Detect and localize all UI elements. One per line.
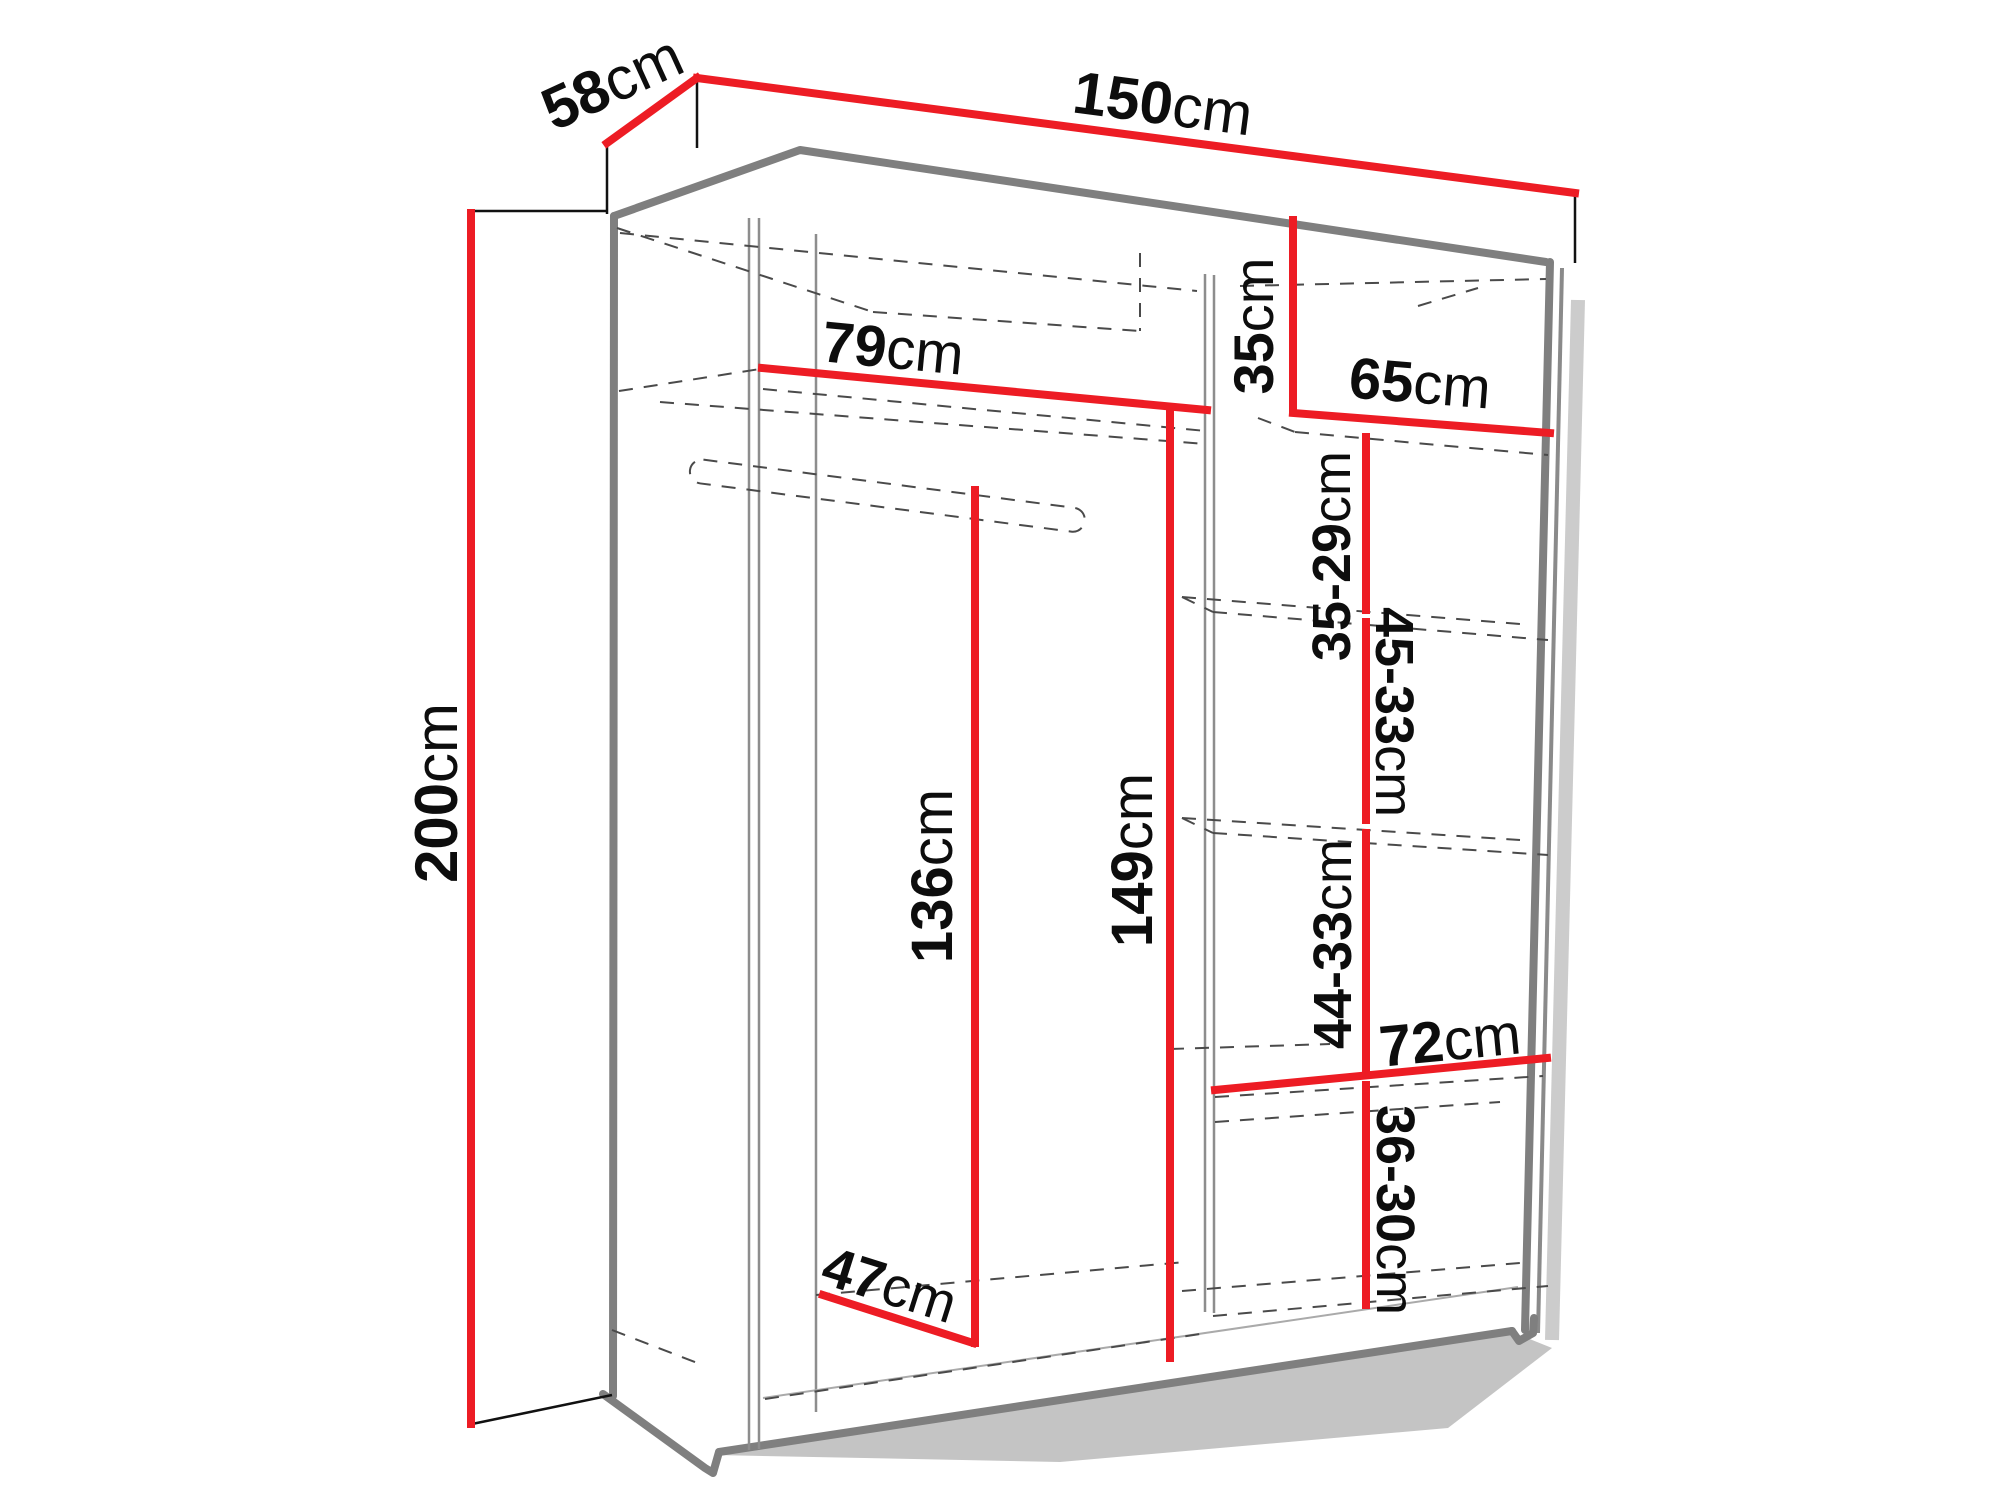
dashed-top-depth-left bbox=[617, 228, 873, 312]
cabinet-side-bottom-edge bbox=[603, 1394, 719, 1473]
dim-label-72: 72cm bbox=[1376, 1001, 1523, 1079]
dim-label-36-30: 36-30cm bbox=[1365, 1105, 1425, 1315]
dim-label-200: 200cm bbox=[403, 703, 470, 883]
dashed-top-back-edge bbox=[620, 233, 1197, 291]
shelf4-lower bbox=[1215, 1102, 1500, 1122]
dim-label-65: 65cm bbox=[1347, 345, 1494, 421]
left-floor-depth bbox=[612, 1330, 700, 1364]
dashed-left-shelf-front bbox=[763, 389, 1206, 431]
cabinet-top-edge bbox=[614, 150, 1546, 262]
cabinet-shadow bbox=[715, 1332, 1552, 1462]
shelf3-front bbox=[1213, 833, 1548, 855]
wardrobe-dimension-diagram: 58cm 150cm 200cm 79cm 35cm 65cm 35-29cm … bbox=[0, 0, 2000, 1500]
dashed-top-right-depth bbox=[1418, 288, 1478, 306]
dashed-top-right bbox=[1240, 279, 1546, 286]
shelf1-depth bbox=[1258, 418, 1295, 432]
cabinet-front-left-edge bbox=[613, 216, 614, 1396]
dim-line-65 bbox=[1293, 413, 1550, 433]
dimension-labels: 58cm 150cm 200cm 79cm 35cm 65cm 35-29cm … bbox=[403, 21, 1524, 1335]
dim-label-35-29: 35-29cm bbox=[1302, 451, 1362, 661]
dim-label-79: 79cm bbox=[819, 309, 966, 387]
dim-label-45-33: 45-33cm bbox=[1364, 607, 1424, 817]
cabinet-front-right-edge bbox=[1525, 262, 1550, 1330]
dim-label-136: 136cm bbox=[900, 789, 965, 963]
dim-label-149: 149cm bbox=[1100, 773, 1165, 947]
bottom-shelf-back bbox=[1182, 1263, 1520, 1291]
shelf3-back bbox=[1182, 818, 1520, 840]
dim-label-44-33: 44-33cm bbox=[1303, 839, 1363, 1049]
dim-label-58: 58cm bbox=[531, 21, 692, 143]
dashed-left-shelf-back bbox=[619, 369, 760, 391]
floor-line bbox=[472, 1395, 612, 1424]
dim-label-35: 35cm bbox=[1222, 258, 1285, 395]
